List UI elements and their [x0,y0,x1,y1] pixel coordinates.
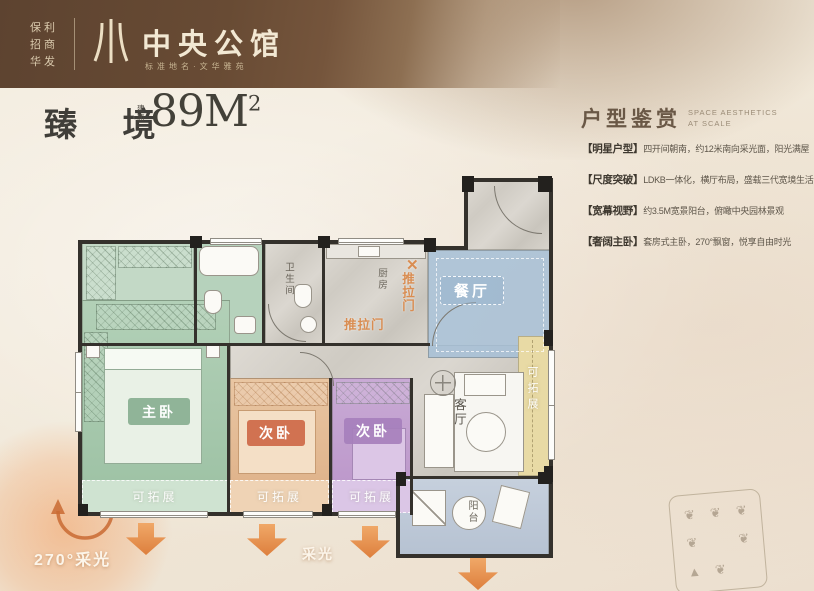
tree-icon: ▲ [688,564,702,580]
bathtub [199,246,259,276]
leaf-icon: ❦ [686,535,698,552]
window [548,350,555,460]
column [462,176,474,192]
master-bed-pillows [104,348,202,370]
toilet [204,290,222,314]
washing-machine-mark [412,490,446,526]
bed3-wardrobe [336,382,410,404]
area-value: 89M2 [150,86,260,137]
closet-cabinet [118,246,192,268]
header-divider [74,18,75,70]
header-band: 保利 招商 华发 中央公馆 标准地名·文华雅苑 [0,0,560,88]
sliding-door-label-vertical: 推拉门 [398,272,417,313]
column [322,504,332,516]
sliding-door-label: 推拉门 [344,314,385,333]
wall [78,343,430,346]
column [538,472,552,484]
developer-2: 招商 [30,36,58,53]
selling-point: 【明星户型】四开间朝南，约12米南向采光面，阳光满屋 [582,139,814,157]
daylight-arrow-icon [247,524,287,556]
tv-console [464,374,506,396]
panel-subtitle-en: SPACE AESTHETICS AT SCALE [688,107,778,130]
master-bedroom-label: 主卧 [128,398,190,425]
brand-logo-icon [90,15,132,67]
column [396,472,406,486]
living-room-label: 客厅 [450,398,469,427]
project-tagline: 标准地名·文华雅苑 [145,61,248,72]
window [100,511,208,518]
wall [396,476,400,558]
window [210,238,262,245]
developer-1: 保利 [30,19,58,36]
panel-title: 户型鉴赏 [581,103,681,133]
cross-mark: ✕ [406,256,419,274]
wall [262,242,265,345]
selling-point: 【宽幕视野】约3.5M宽景阳台，俯瞰中央园林景观 [582,201,814,219]
sink [234,316,256,334]
garden-sketch: ❦❦❦ ❦ ❦ ▲❦ [668,488,768,591]
leaf-icon [744,560,749,575]
nightstand [206,344,220,358]
dining-room-label: 餐厅 [440,276,504,305]
column [538,176,552,192]
window [338,238,404,245]
wall [400,476,550,479]
daylight-270-callout: 270°采光 [34,546,111,570]
second-bedroom-label: 次卧 [247,420,305,446]
wall [396,554,552,558]
window [243,511,313,518]
leaf-icon: ❦ [714,561,726,578]
closet-cabinet [86,246,116,300]
bathroom-label: 卫生间 [281,262,295,297]
daylight-callout: 采光 [302,544,334,564]
leaf-icon: ❦ [738,531,750,548]
area-prefix: 建面 [137,105,147,122]
ceiling-fan-icon [430,370,456,396]
wall [194,242,197,345]
daylight-arrow-icon [458,558,498,590]
developer-3: 华发 [30,53,58,70]
kitchen-sink [358,246,380,257]
wall [410,378,413,515]
third-bedroom-label: 次卧 [344,418,402,444]
expand-label-balcony: 可拓展 [524,366,540,414]
expand-strip-bed2: 可拓展 [230,480,329,513]
nightstand [86,344,100,358]
coffee-table [466,412,506,452]
column [318,236,330,248]
developer-names: 保利 招商 华发 [30,19,58,70]
leaf-icon: ❦ [735,503,747,520]
leaf-icon [716,534,721,549]
leaf-icon: ❦ [683,507,695,524]
column [78,504,88,516]
wall [227,345,230,515]
selling-point: 【奢阔主卧】套房式主卧，270°飘窗，悦享自由时光 [582,232,814,250]
kitchen-label: 厨房 [374,268,388,291]
project-name: 中央公馆 [142,21,286,63]
expand-strip-master: 可拓展 [82,480,228,513]
column [544,330,553,346]
daylight-arrow-icon [350,526,390,558]
selling-point: 【尺度突破】LDKB一体化，横厅布局，盛载三代宽境生活 [582,170,814,188]
selling-points: 【明星户型】四开间朝南，约12米南向采光面，阳光满屋 【尺度突破】LDKB一体化… [582,139,814,263]
wall [329,378,332,515]
wall [322,242,325,345]
column [190,236,202,248]
window [75,352,82,432]
floorplan-poster: 保利 招商 华发 中央公馆 标准地名·文华雅苑 臻 境 建面 89M2 户型鉴赏… [0,0,814,591]
leaf-icon: ❦ [709,505,721,522]
window [338,511,396,518]
column [424,238,436,252]
master-wardrobe [96,304,216,330]
balcony-label: 阳台 [464,500,479,524]
